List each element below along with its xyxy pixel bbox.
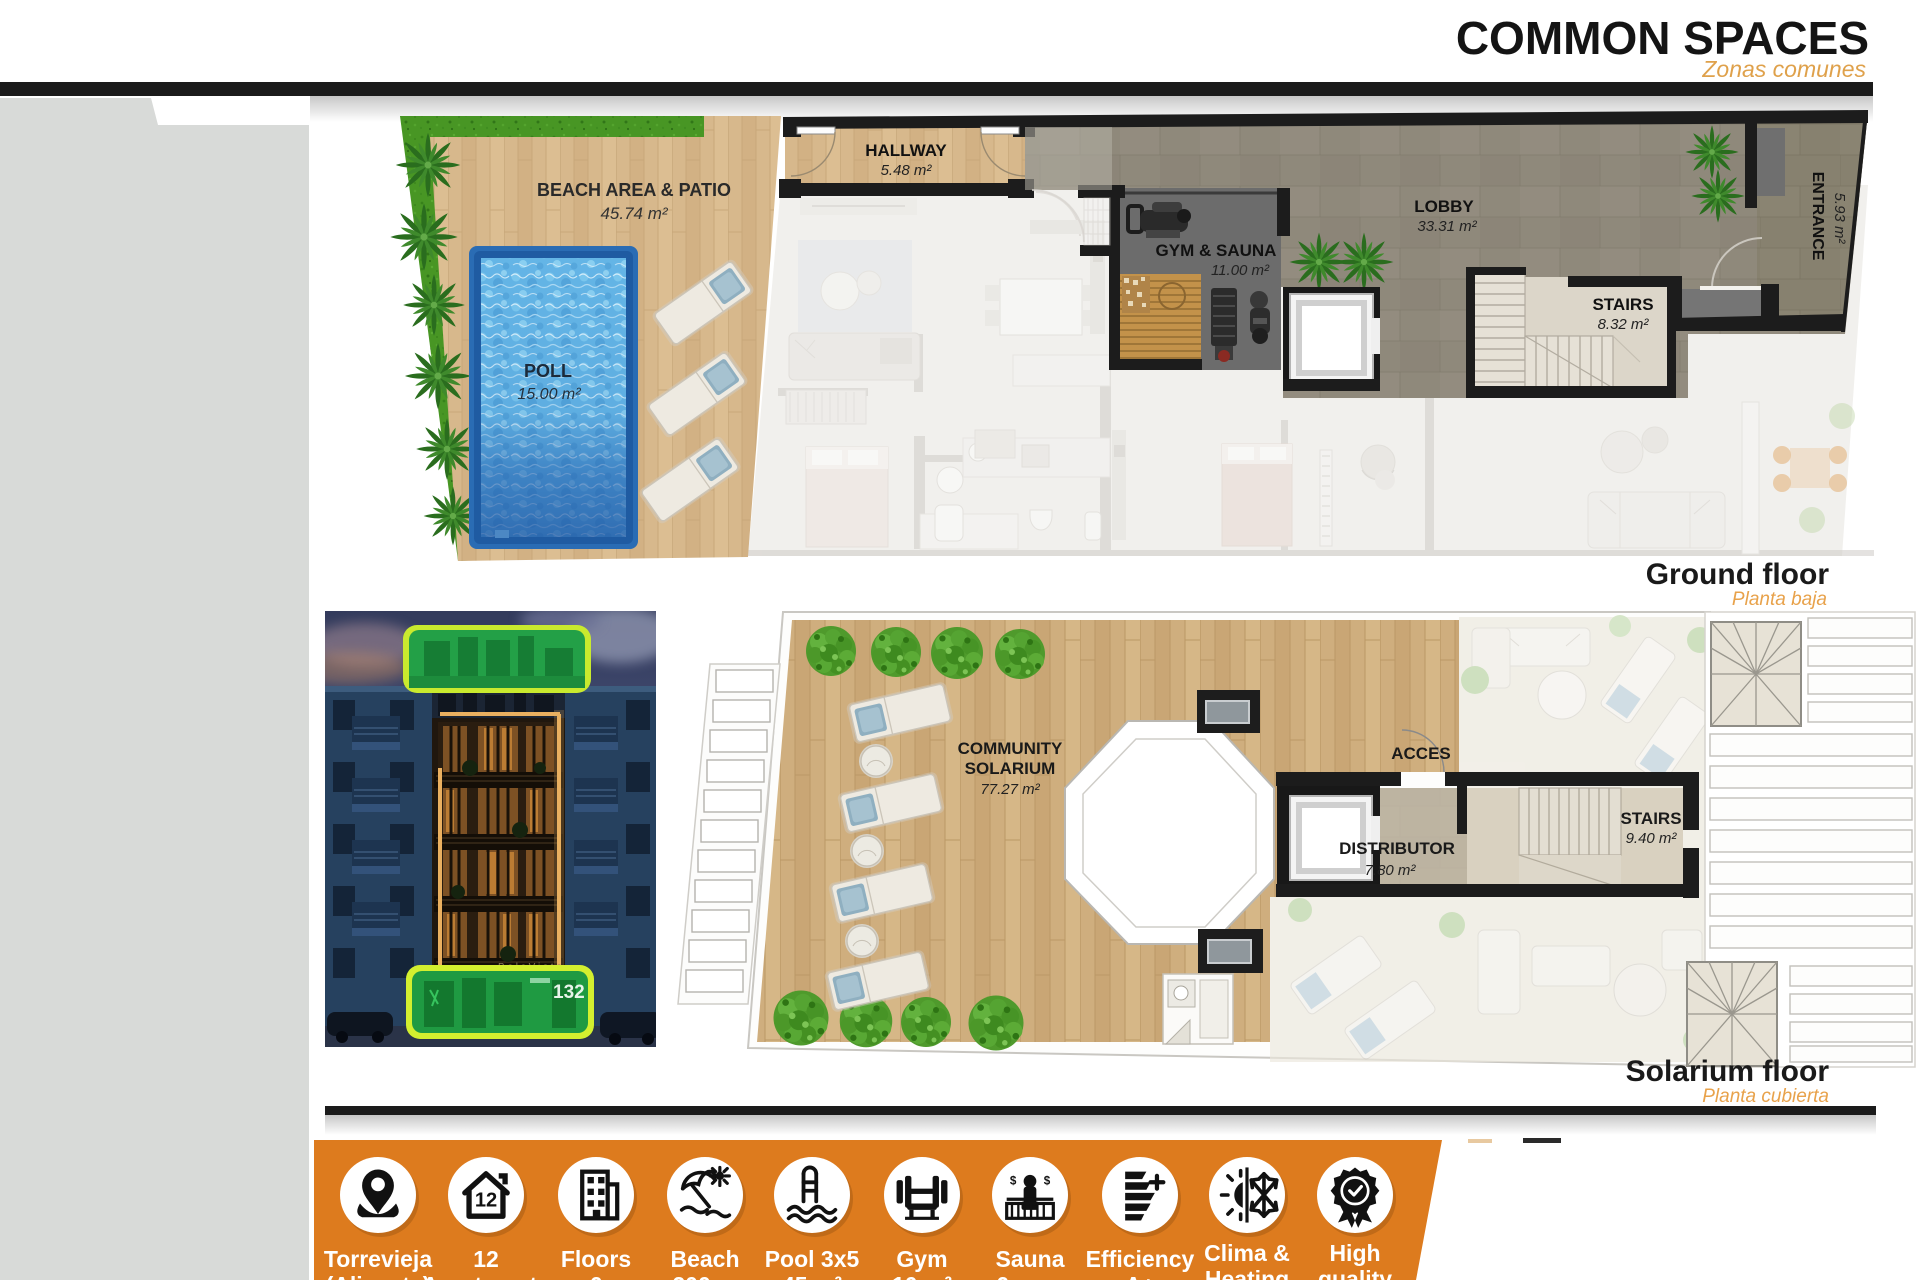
svg-text:Apartments: Apartments <box>422 1272 550 1280</box>
svg-text:45 m²: 45 m² <box>782 1272 842 1280</box>
svg-text:Ground floor: Ground floor <box>1646 558 1830 591</box>
svg-text:BEACH AREA & PATIO: BEACH AREA & PATIO <box>537 180 731 200</box>
svg-text:Heating: Heating <box>1205 1266 1289 1280</box>
svg-text:Solarium floor: Solarium floor <box>1626 1055 1830 1088</box>
svg-text:Floors: Floors <box>561 1246 631 1272</box>
svg-text:Efficiency: Efficiency <box>1086 1246 1195 1272</box>
svg-text:11.00 m²: 11.00 m² <box>1211 262 1270 279</box>
svg-text:GYM & SAUNA: GYM & SAUNA <box>1156 241 1277 260</box>
svg-text:(Alicante): (Alicante) <box>326 1272 431 1280</box>
svg-text:HALLWAY: HALLWAY <box>865 141 947 160</box>
svg-text:6 pers: 6 pers <box>996 1272 1064 1280</box>
svg-text:Gym: Gym <box>896 1246 947 1272</box>
svg-text:SOLARIUM: SOLARIUM <box>965 759 1056 778</box>
svg-text:45.74 m²: 45.74 m² <box>600 204 668 223</box>
svg-text:A+: A+ <box>1125 1272 1155 1280</box>
svg-text:POLL: POLL <box>524 361 572 381</box>
svg-text:Torrevieja: Torrevieja <box>324 1246 432 1272</box>
svg-text:DISTRIBUTOR: DISTRIBUTOR <box>1339 839 1455 858</box>
svg-text:77.27 m²: 77.27 m² <box>980 781 1040 798</box>
svg-text:ENTRANCE: ENTRANCE <box>1809 172 1826 261</box>
svg-text:12: 12 <box>473 1246 499 1272</box>
svg-text:STAIRS: STAIRS <box>1592 295 1653 314</box>
svg-text:Pool 3x5: Pool 3x5 <box>765 1246 860 1272</box>
svg-text:Planta cubierta: Planta cubierta <box>1702 1086 1829 1107</box>
svg-text:6: 6 <box>590 1272 603 1280</box>
svg-text:5.48 m²: 5.48 m² <box>881 162 933 179</box>
svg-text:8.32 m²: 8.32 m² <box>1598 316 1650 333</box>
svg-text:Clima &: Clima & <box>1204 1240 1290 1266</box>
svg-text:Sauna: Sauna <box>995 1246 1064 1272</box>
svg-text:5.93 m²: 5.93 m² <box>1831 193 1848 245</box>
svg-text:High: High <box>1329 1240 1380 1266</box>
svg-text:200 m: 200 m <box>672 1272 737 1280</box>
svg-text:15.00 m²: 15.00 m² <box>517 386 581 403</box>
svg-text:Zonas comunes: Zonas comunes <box>1701 56 1866 82</box>
svg-text:Planta baja: Planta baja <box>1732 589 1827 610</box>
svg-text:COMMUNITY: COMMUNITY <box>958 739 1063 758</box>
svg-text:ACCES: ACCES <box>1391 744 1451 763</box>
svg-text:10 m²: 10 m² <box>892 1272 952 1280</box>
svg-text:STAIRS: STAIRS <box>1620 809 1681 828</box>
svg-text:9.40 m²: 9.40 m² <box>1626 830 1678 847</box>
svg-text:33.31 m²: 33.31 m² <box>1417 218 1477 235</box>
svg-text:quality: quality <box>1318 1266 1392 1280</box>
svg-text:132: 132 <box>553 982 585 1003</box>
svg-text:Beach: Beach <box>670 1246 739 1272</box>
svg-text:LOBBY: LOBBY <box>1414 197 1474 216</box>
svg-text:7.80 m²: 7.80 m² <box>1365 862 1417 879</box>
